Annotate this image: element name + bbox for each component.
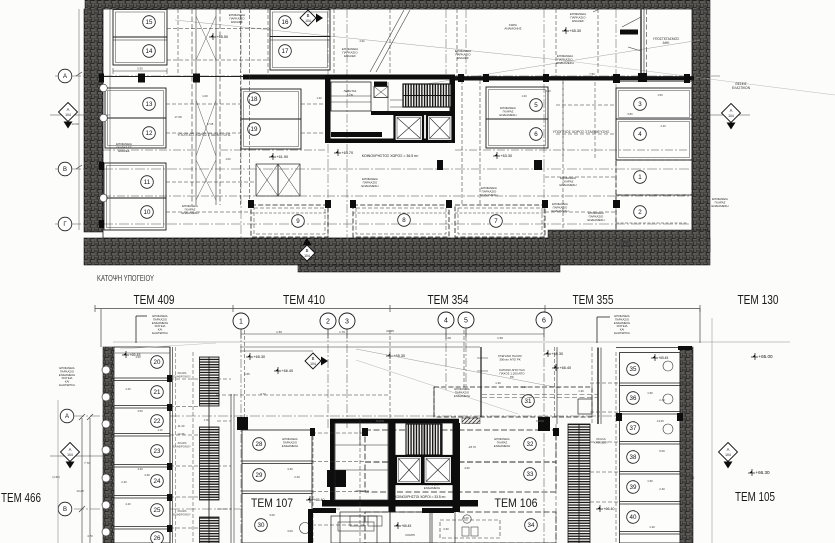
svg-text:+65.00: +65.00: [758, 354, 773, 359]
svg-text:17.08: 17.08: [207, 122, 214, 126]
svg-text:32: 32: [527, 441, 534, 448]
svg-text:+66.45: +66.45: [401, 524, 411, 528]
svg-text:4.60: 4.60: [464, 466, 470, 470]
svg-text:ΕΠΙΦΑΝΕΙΑΠΑΡΚΑΣΙΟΕΝΔΙΑΜΕΣΗΙΣΟΓ: ΕΠΙΦΑΝΕΙΑΠΑΡΚΑΣΙΟΕΝΔΙΑΜΕΣΗΙΣΟΓΕΙΑΚΑΙΕΞΩΤ…: [152, 314, 168, 335]
svg-text:36: 36: [630, 395, 637, 402]
svg-text:1: 1: [239, 319, 243, 326]
svg-text:+66.40: +66.40: [281, 369, 293, 373]
svg-text:5: 5: [534, 102, 538, 109]
svg-text:ΤΕΜ 354: ΤΕΜ 354: [428, 293, 469, 307]
svg-text:13: 13: [146, 101, 153, 108]
svg-text:104: 104: [65, 113, 71, 117]
svg-text:1.10: 1.10: [157, 428, 163, 432]
svg-text:ΣΤΕΓΑΝΟ ΠΑΧΟΣ300mm ΑΠΟ ΡΚ: ΣΤΕΓΑΝΟ ΠΑΧΟΣ300mm ΑΠΟ ΡΚ: [498, 354, 522, 362]
svg-text:1.70: 1.70: [339, 330, 345, 334]
svg-text:1.30: 1.30: [521, 94, 527, 98]
svg-text:2.40: 2.40: [125, 387, 131, 391]
svg-text:19: 19: [251, 126, 258, 133]
svg-text:28: 28: [256, 441, 263, 448]
svg-text:3: 3: [345, 319, 349, 326]
svg-text:37: 37: [630, 425, 637, 432]
svg-text:ΤΕΜ 130: ΤΕΜ 130: [738, 293, 779, 307]
svg-text:ΕΠΙΦΑΝΕΙΑΠΑΡΚΑΣΙΟΕΝΔΙΑΜΕΣΗ: ΕΠΙΦΑΝΕΙΑΠΑΡΚΑΣΙΟΕΝΔΙΑΜΕΣΗ: [588, 211, 605, 222]
svg-text:+66.30: +66.30: [755, 470, 770, 475]
svg-text:22: 22: [154, 418, 161, 425]
svg-text:23: 23: [154, 448, 161, 455]
svg-text:ΡΑΜΠΑ: ΡΑΜΠΑ: [376, 420, 385, 423]
svg-text:2.90: 2.90: [359, 39, 365, 43]
svg-text:6: 6: [542, 318, 546, 325]
svg-text:A: A: [727, 447, 730, 452]
svg-text:ΕΠΙΦΑΝΕΙΑΠΑΡΚΑΣΙΟΕΝΙΑΙΕΣ: ΕΠΙΦΑΝΕΙΑΠΑΡΚΑΣΙΟΕΝΙΑΙΕΣ: [570, 12, 586, 23]
svg-text:ΥΠΟΓΕΙΟΣ ΧΩΡΟΣ ΣΤΑΘΜΕΥΣΗΣ: ΥΠΟΓΕΙΟΣ ΧΩΡΟΣ ΣΤΑΘΜΕΥΣΗΣ: [553, 130, 611, 134]
svg-text:25: 25: [154, 507, 161, 514]
svg-text:ΚΟΙΝΟΧΡΗΣΤΟΙ ΧΩΡΟΙ = 33.5 m²: ΚΟΙΝΟΧΡΗΣΤΟΙ ΧΩΡΟΙ = 33.5 m²: [395, 495, 447, 499]
svg-text:21: 21: [154, 389, 161, 396]
svg-text:1.00: 1.00: [202, 94, 208, 98]
svg-text:ΑΠΟΘΗΚΗ: ΑΠΟΘΗΚΗ: [355, 489, 369, 493]
svg-text:4: 4: [444, 318, 448, 325]
svg-text:+63.30: +63.30: [500, 154, 512, 158]
svg-text:20: 20: [154, 359, 161, 366]
svg-text:ΕΠΙΦΑΝΕΙΑΠΑΡΚΑΣΙΟΕΝΔΙΑΜΕΣΗ: ΕΠΙΦΑΝΕΙΑΠΑΡΚΑΣΙΟΕΝΔΙΑΜΕΣΗ: [454, 387, 470, 398]
svg-text:1.74: 1.74: [204, 419, 209, 422]
svg-text:2.40: 2.40: [545, 89, 551, 93]
svg-text:ΚΟΙΝΟΧΡΗΣΤΟΣ ΧΩΡΟΣ = 36.5 m²: ΚΟΙΝΟΧΡΗΣΤΟΣ ΧΩΡΟΣ = 36.5 m²: [362, 154, 419, 158]
svg-text:B: B: [312, 356, 315, 361]
svg-text:11: 11: [144, 179, 151, 186]
svg-text:104: 104: [304, 254, 310, 258]
svg-text:1.20: 1.20: [649, 525, 655, 529]
svg-text:(1.50): (1.50): [52, 475, 59, 479]
svg-text:ΛΟΜΠΙ: ΛΟΜΠΙ: [405, 533, 415, 537]
svg-text:17.08: 17.08: [175, 115, 182, 119]
svg-text:ΤΕΜ 466: ΤΕΜ 466: [1, 491, 41, 505]
svg-text:ΤΕΜ 107: ΤΕΜ 107: [251, 496, 293, 510]
svg-text:ΕΠΙΦΑΝΕΙΑΠΑΡΚΑΣΙΟΕΝΔΙΑΜΕΣΗ: ΕΠΙΦΑΝΕΙΑΠΑΡΚΑΣΙΟΕΝΔΙΑΜΕΣΗ: [552, 202, 569, 213]
svg-text:ΕΠΙΦΑΝΕΙΑΠΑΡΚΑΣΙΟΕΝΔΙΑΜΕΣΗΙΣΟΓ: ΕΠΙΦΑΝΕΙΑΠΑΡΚΑΣΙΟΕΝΔΙΑΜΕΣΗΙΣΟΓΕΙΑΚΑΙΕΞΩΤ…: [614, 314, 630, 335]
svg-text:13.28: 13.28: [76, 489, 84, 493]
svg-text:40: 40: [630, 514, 637, 521]
svg-text:21.50: 21.50: [686, 476, 695, 480]
svg-text:A: A: [63, 74, 67, 80]
svg-text:1.50: 1.50: [497, 336, 503, 340]
svg-text:ΕΠΙΦΑΝΕΙΑΠΑΡΚΑΣΙΟΕΝΙΑΙΕΣ: ΕΠΙΦΑΝΕΙΑΠΑΡΚΑΣΙΟΕΝΙΑΙΕΣ: [455, 49, 471, 60]
svg-text:16: 16: [282, 19, 289, 26]
svg-text:7.50: 7.50: [589, 72, 595, 76]
svg-text:2: 2: [326, 319, 330, 326]
svg-text:+65.50: +65.50: [216, 35, 228, 39]
svg-text:B: B: [307, 13, 310, 18]
svg-text:2.40: 2.40: [294, 475, 300, 479]
svg-text:ΤΕΜ 410: ΤΕΜ 410: [283, 293, 325, 307]
svg-text:ΕΠΙΦΑΝΕΙΑΓΚΑΡΑΖ ΣΕΕΝΙΑΙΕΣ: ΕΠΙΦΑΝΕΙΑΓΚΑΡΑΖ ΣΕΕΝΙΑΙΕΣ: [116, 142, 132, 153]
svg-text:2.40: 2.40: [125, 502, 131, 506]
svg-text:ΤΕΜ 409: ΤΕΜ 409: [134, 293, 175, 307]
svg-text:104: 104: [305, 19, 311, 23]
svg-text:1.30: 1.30: [316, 96, 322, 100]
svg-text:A: A: [67, 107, 70, 112]
svg-text:B: B: [63, 167, 67, 173]
svg-text:7.70: 7.70: [84, 461, 90, 465]
svg-text:-13.05: -13.05: [656, 419, 664, 423]
svg-text:ΥΠΟΓΕΙΟΣ ΧΩΡΟΣ ΣΤΑΘΜΕΥΣΗΣ: ΥΠΟΓΕΙΟΣ ΧΩΡΟΣ ΣΤΑΘΜΕΥΣΗΣ: [177, 133, 231, 137]
svg-text:ΤΕΜ 105: ΤΕΜ 105: [735, 490, 775, 504]
svg-text:3.30: 3.30: [443, 527, 449, 531]
svg-text:A: A: [730, 108, 733, 113]
svg-text:4: 4: [638, 131, 642, 138]
svg-text:5.80: 5.80: [627, 112, 633, 116]
svg-text:14: 14: [146, 48, 153, 55]
svg-text:B: B: [63, 507, 67, 513]
svg-text:1.65: 1.65: [244, 372, 250, 376]
svg-text:ΕΠΙΦΑΝΕΙΑΠΑΡΚΑΣΙΟΕΝΔΙΑΜΕΣΗΙΣΟΓ: ΕΠΙΦΑΝΕΙΑΠΑΡΚΑΣΙΟΕΝΔΙΑΜΕΣΗΙΣΟΓΕΙΑΚΑΙΕΞΩΤ…: [59, 366, 75, 387]
svg-text:7.50: 7.50: [447, 140, 453, 144]
svg-text:ΕΠΙΦΑΝΕΙΑΠΑΡΚΑΣΙΟΕΝΔΙΑΜΕΣΗ: ΕΠΙΦΑΝΕΙΑΠΑΡΚΑΣΙΟΕΝΔΙΑΜΕΣΗ: [282, 437, 298, 448]
svg-text:33: 33: [527, 471, 534, 478]
svg-text:3.00: 3.00: [269, 513, 275, 517]
svg-text:3.00: 3.00: [287, 529, 293, 533]
svg-text:2.40: 2.40: [660, 124, 666, 128]
svg-text:4.70: 4.70: [87, 534, 93, 538]
svg-text:1.00: 1.00: [445, 336, 451, 340]
svg-text:A: A: [69, 447, 72, 452]
svg-text:4.30: 4.30: [287, 467, 293, 471]
svg-text:4.50: 4.50: [137, 409, 143, 413]
svg-text:34: 34: [528, 522, 535, 529]
svg-text:26: 26: [154, 535, 161, 542]
svg-text:A: A: [65, 414, 69, 420]
svg-text:ΕΠΙΦΑΝΕΙΑΠΑΡΚΑΣΙΟΕΝΔΙΑΜΕΣΗ: ΕΠΙΦΑΝΕΙΑΠΑΡΚΑΣΙΟΕΝΔΙΑΜΕΣΗ: [481, 186, 498, 197]
svg-text:4.30: 4.30: [144, 473, 150, 477]
svg-text:38: 38: [630, 454, 637, 461]
svg-text:1.00: 1.00: [225, 157, 231, 161]
svg-text:31: 31: [525, 398, 532, 405]
svg-text:3: 3: [638, 101, 642, 108]
svg-text:B: B: [306, 248, 309, 253]
svg-text:+61.90: +61.90: [276, 155, 288, 159]
svg-text:4.30: 4.30: [137, 467, 143, 471]
svg-text:14.50: 14.50: [72, 122, 79, 126]
svg-text:10.35: 10.35: [178, 432, 185, 436]
svg-text:29: 29: [256, 472, 263, 479]
svg-text:ΕΠΙΦΑΝΕΙΑΠΑΡΚΑΣΙΟΕΝΔΙΑΜΕΣΗ: ΕΠΙΦΑΝΕΙΑΠΑΡΚΑΣΙΟΕΝΔΙΑΜΕΣΗ: [556, 54, 574, 65]
svg-text:5.00: 5.00: [659, 449, 665, 453]
svg-text:30: 30: [258, 522, 265, 529]
svg-text:24: 24: [154, 478, 161, 485]
svg-text:104: 104: [67, 453, 73, 457]
svg-text:7: 7: [494, 218, 498, 225]
svg-text:15: 15: [146, 19, 153, 26]
svg-text:1.30: 1.30: [578, 389, 584, 393]
svg-text:104: 104: [725, 453, 731, 457]
svg-text:2.40: 2.40: [121, 480, 127, 484]
svg-text:+65.30: +65.30: [569, 29, 581, 33]
svg-text:+63.70: +63.70: [341, 151, 353, 155]
svg-text:ΚΑΤΟΨΗ ΥΠΟΓΕΙΟΥ: ΚΑΤΟΨΗ ΥΠΟΓΕΙΟΥ: [97, 274, 154, 283]
svg-text:104: 104: [728, 114, 734, 118]
svg-text:1: 1: [638, 174, 642, 181]
svg-text:+66.40: +66.40: [559, 366, 571, 370]
svg-text:2.40: 2.40: [659, 487, 665, 491]
svg-text:ΤΕΜ 355: ΤΕΜ 355: [573, 293, 614, 307]
svg-text:1.50: 1.50: [276, 330, 282, 334]
svg-text:ΕΠΙΦΑΝΕΙΑΠΑΡΚΑΣΙΟΕΝΙΑΙΕΣ: ΕΠΙΦΑΝΕΙΑΠΑΡΚΑΣΙΟΕΝΙΑΙΕΣ: [229, 13, 245, 24]
svg-text:2.40: 2.40: [659, 398, 665, 402]
svg-text:ΕΠΙΦΑΝΕΙΑΠΑΡΚΑΣΙΟΕΝΔΙΑΜΕΣΗ: ΕΠΙΦΑΝΕΙΑΠΑΡΚΑΣΙΟΕΝΔΙΑΜΕΣΗ: [362, 177, 379, 188]
svg-text:12: 12: [146, 130, 153, 137]
svg-text:104: 104: [310, 362, 316, 366]
svg-text:1.50: 1.50: [657, 93, 663, 97]
svg-text:11.40: 11.40: [178, 424, 185, 428]
svg-text:ΤΕΜ 106: ΤΕΜ 106: [495, 496, 538, 510]
svg-text:10: 10: [144, 209, 151, 216]
svg-text:+65.30: +65.30: [253, 355, 265, 359]
svg-text:1.50: 1.50: [647, 479, 653, 483]
svg-text:3.00: 3.00: [463, 516, 469, 520]
svg-text:8: 8: [402, 217, 406, 224]
svg-text:5.50: 5.50: [137, 67, 143, 71]
svg-text:18: 18: [251, 96, 258, 103]
svg-text:1.30: 1.30: [495, 381, 501, 385]
svg-text:6: 6: [534, 131, 538, 138]
svg-text:17: 17: [282, 48, 289, 55]
svg-text:ΡΑΜΠΑ: ΡΑΜΠΑ: [536, 420, 545, 423]
svg-text:35: 35: [630, 366, 637, 373]
svg-text:2: 2: [638, 209, 642, 216]
svg-text:3.70: 3.70: [260, 392, 266, 396]
svg-text:39: 39: [630, 484, 637, 491]
svg-text:+66.40: +66.40: [603, 507, 614, 511]
svg-text:1.10: 1.10: [521, 385, 527, 389]
svg-text:+65.30: +65.30: [393, 354, 405, 358]
svg-text:-18.70: -18.70: [468, 445, 476, 449]
svg-text:4.50: 4.50: [135, 355, 141, 359]
svg-text:1.50: 1.50: [647, 391, 653, 395]
svg-text:9: 9: [296, 218, 300, 225]
svg-text:ΕΠΙΦΑΝΕΙΑΠΑΡΚΑΣΙΟΕΝΙΑΙΕΣ: ΕΠΙΦΑΝΕΙΑΠΑΡΚΑΣΙΟΕΝΙΑΙΕΣ: [342, 47, 358, 58]
svg-text:5: 5: [464, 318, 468, 325]
svg-text:+65.45: +65.45: [658, 356, 668, 360]
